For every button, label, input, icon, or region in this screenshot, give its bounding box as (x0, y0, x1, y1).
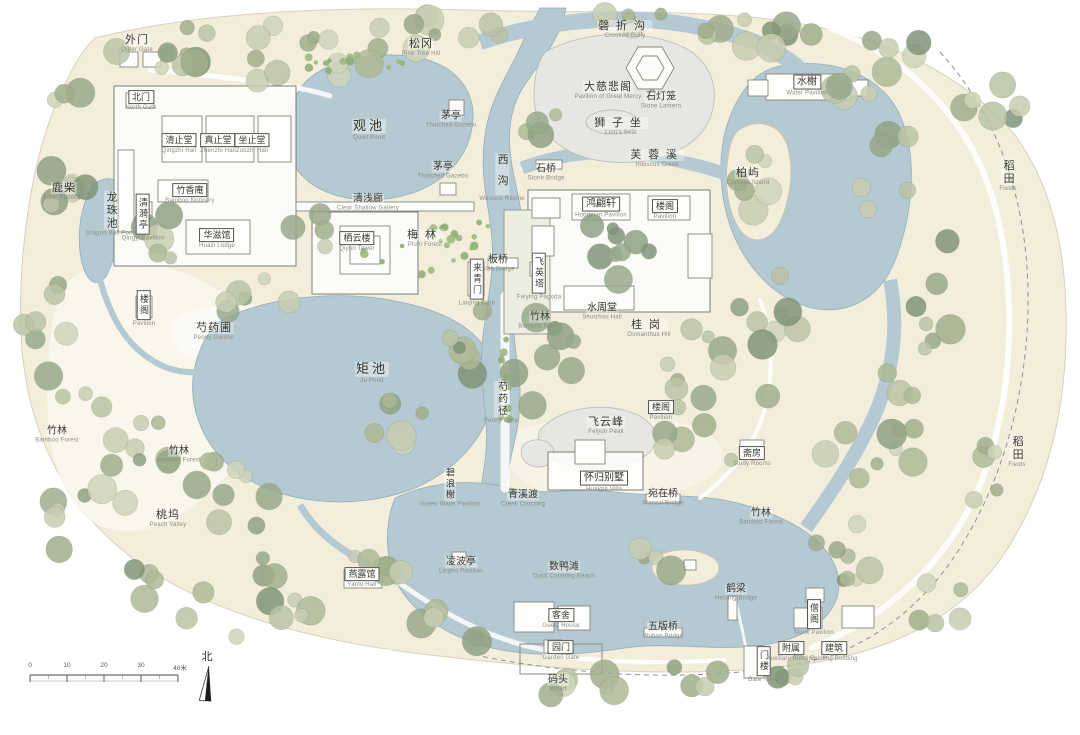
stone-lantern-dot (649, 90, 655, 96)
scale-bar-line (26, 672, 196, 684)
scale-bar: 0 10 20 30 40米 (26, 662, 196, 689)
north-arrow-icon (196, 663, 218, 705)
lion-seat-rock (586, 110, 638, 134)
compass: 北 (198, 648, 216, 704)
map-canvas: 外门Outer Gate松冈Pine Tree Hill磬折沟Crooked G… (0, 0, 1080, 735)
scale-end-label: 40米 (173, 662, 187, 672)
map-basemap (0, 0, 1080, 735)
scale-tick-label: 0 (28, 662, 32, 669)
great-mercy-hill (534, 34, 714, 162)
scale-tick-label: 30 (137, 662, 144, 669)
scale-tick-label: 20 (100, 662, 107, 669)
scale-tick-label: 10 (63, 662, 70, 669)
compass-north-label: 北 (202, 648, 213, 664)
scale-bar-numbers: 0 10 20 30 40米 (26, 662, 196, 671)
